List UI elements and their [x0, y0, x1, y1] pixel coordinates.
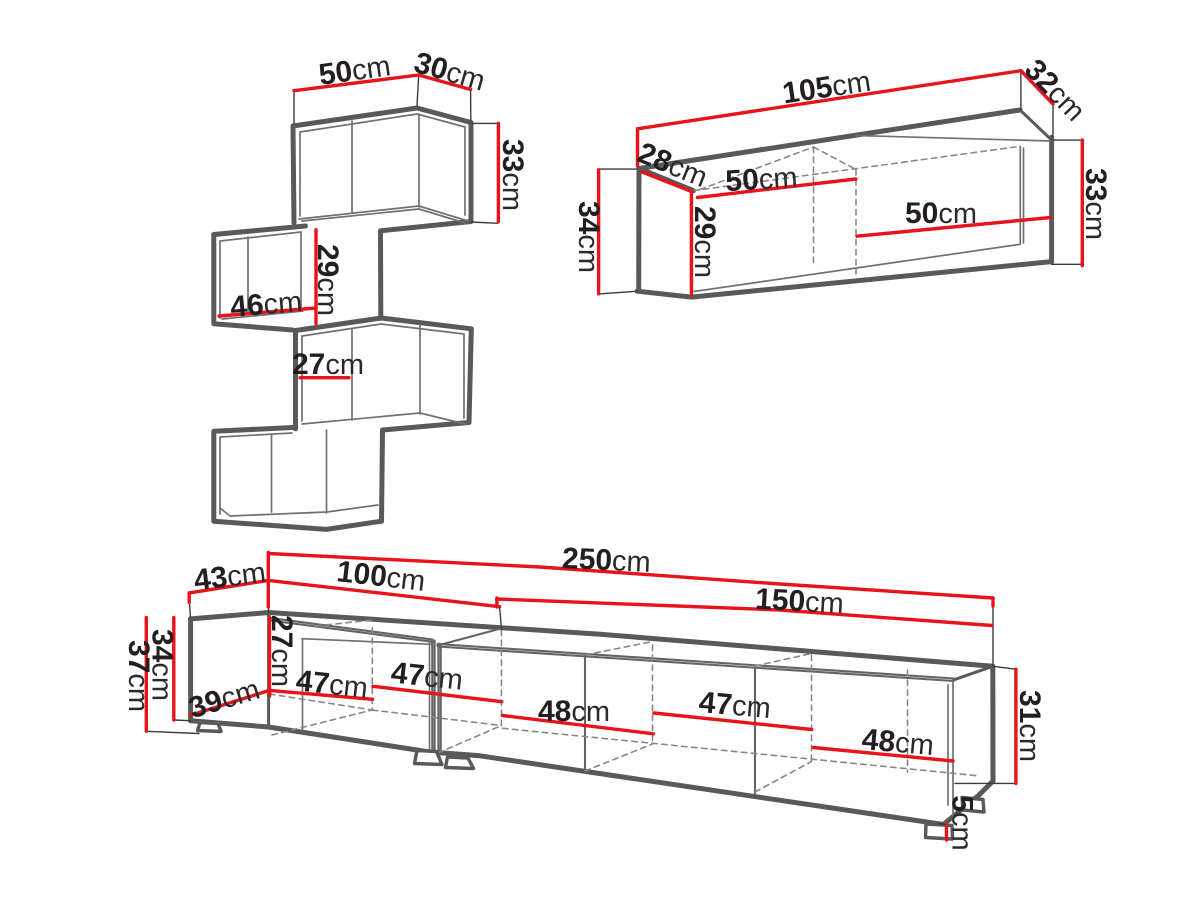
svg-text:34cm: 34cm	[146, 629, 179, 701]
svg-text:27cm: 27cm	[292, 348, 364, 381]
svg-text:50cm: 50cm	[905, 197, 977, 230]
svg-text:250cm: 250cm	[561, 542, 651, 579]
svg-text:46cm: 46cm	[229, 285, 304, 324]
svg-text:47cm: 47cm	[294, 664, 369, 704]
svg-text:50cm: 50cm	[317, 49, 393, 92]
svg-text:50cm: 50cm	[724, 161, 798, 198]
svg-text:105cm: 105cm	[780, 65, 873, 111]
svg-text:39cm: 39cm	[185, 673, 264, 726]
svg-text:5cm: 5cm	[946, 795, 979, 850]
svg-text:48cm: 48cm	[538, 695, 610, 728]
svg-text:29cm: 29cm	[311, 244, 344, 316]
svg-text:47cm: 47cm	[698, 686, 773, 725]
svg-text:30cm: 30cm	[410, 46, 488, 98]
svg-text:34cm: 34cm	[572, 201, 605, 273]
svg-text:33cm: 33cm	[1079, 168, 1112, 240]
svg-text:31cm: 31cm	[1013, 690, 1046, 762]
svg-text:150cm: 150cm	[754, 583, 844, 621]
svg-text:43cm: 43cm	[192, 556, 268, 598]
svg-text:33cm: 33cm	[496, 139, 529, 211]
svg-text:48cm: 48cm	[861, 723, 936, 762]
svg-text:29cm: 29cm	[688, 206, 721, 278]
svg-text:27cm: 27cm	[265, 615, 298, 687]
